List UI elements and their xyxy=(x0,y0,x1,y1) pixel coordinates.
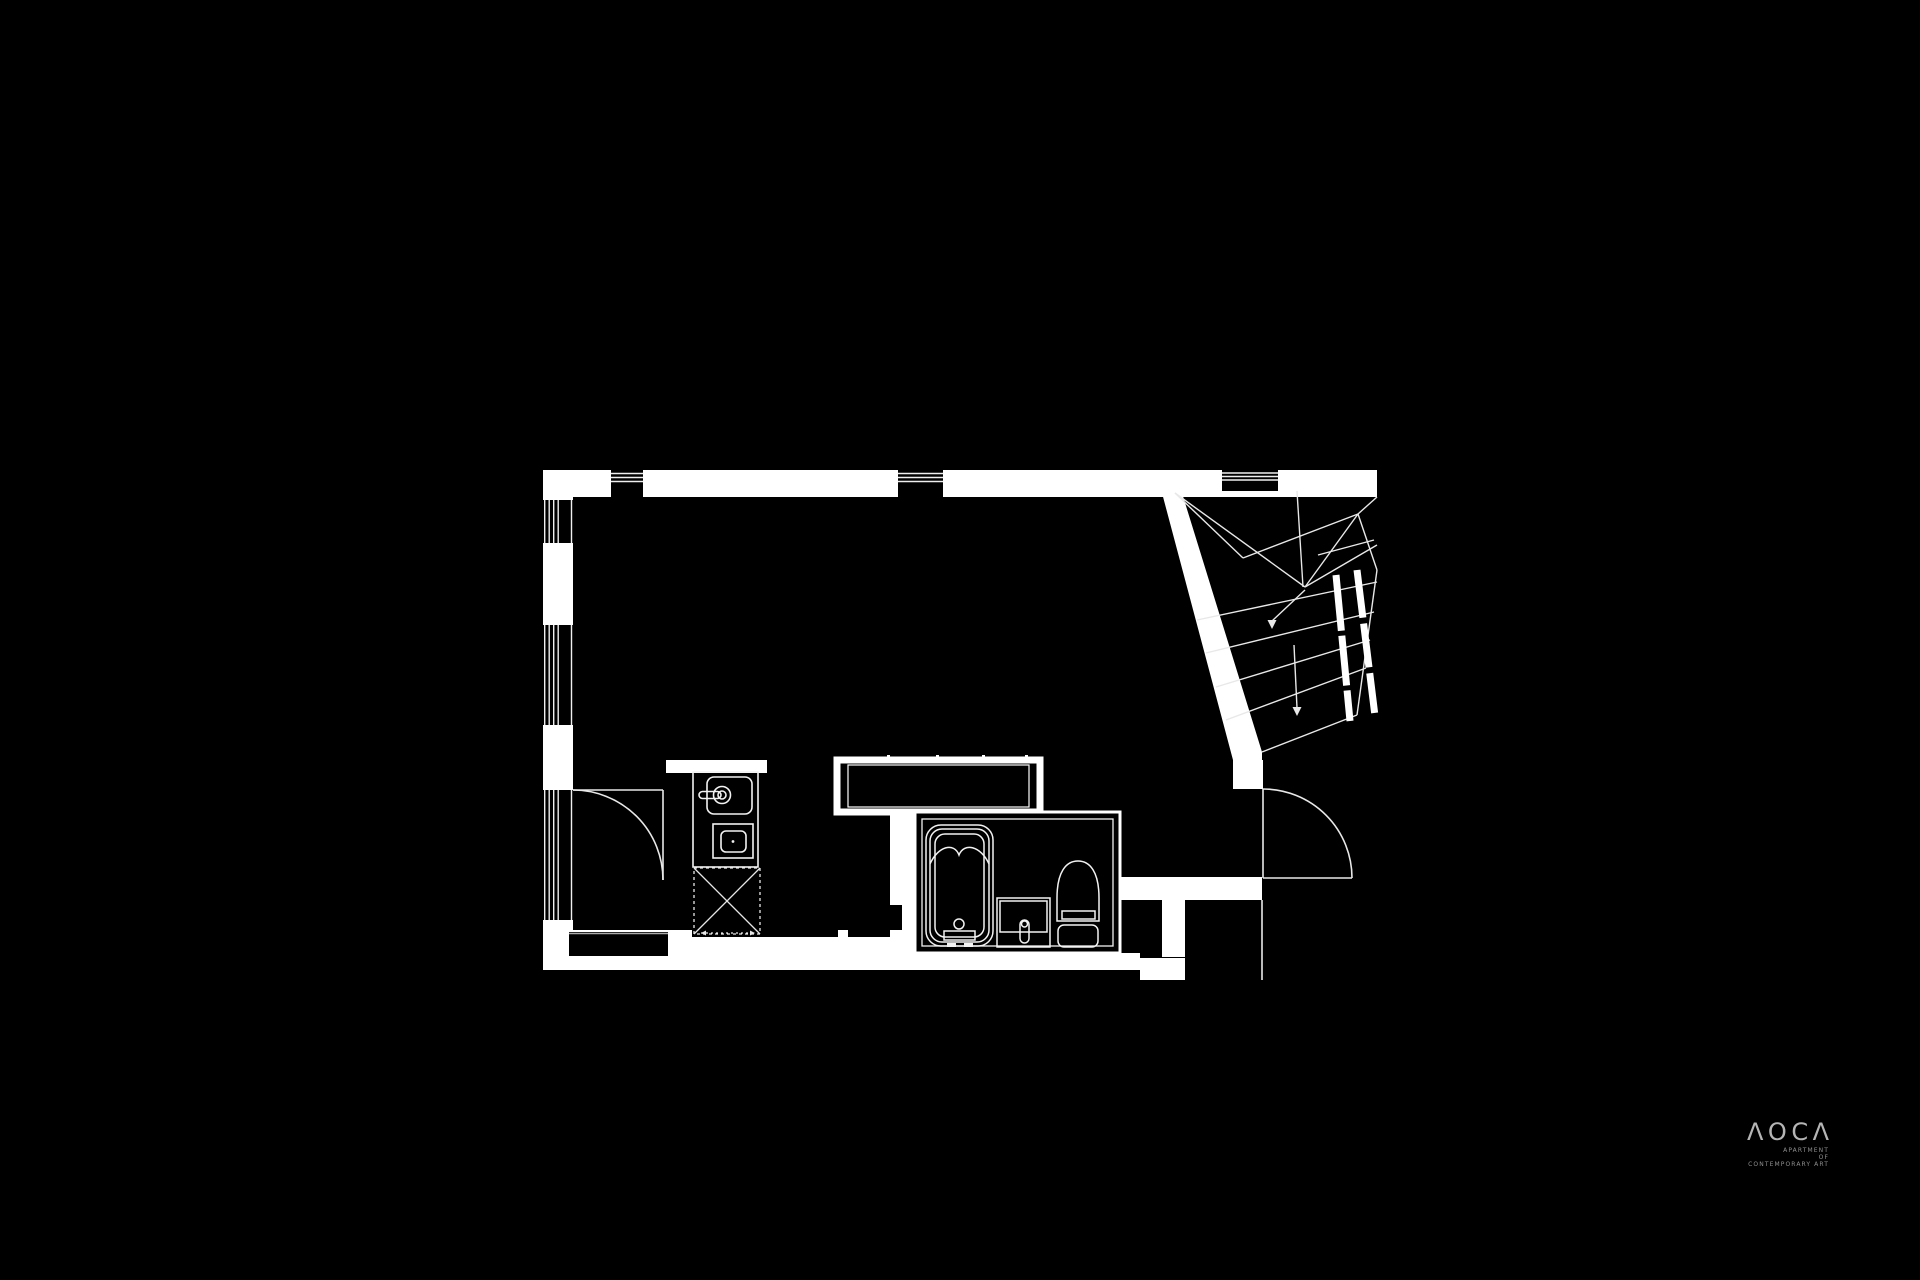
window-icon xyxy=(543,790,573,920)
kitchen-sink-icon xyxy=(699,777,752,814)
diagonal-wall xyxy=(1162,493,1262,789)
down-arrow-icon xyxy=(1268,590,1306,629)
interior-door-swing-icon xyxy=(573,790,663,880)
wall-column xyxy=(890,812,915,953)
brand-wordmark: ΛOCΛ xyxy=(1741,1120,1834,1144)
window-icon xyxy=(543,625,573,725)
floor-plan xyxy=(0,0,1920,1280)
closet-icon xyxy=(569,932,668,956)
brand-subline-2: OF xyxy=(1741,1154,1829,1161)
refrigerator-space-icon xyxy=(694,868,760,934)
brand-logo: ΛOCΛ APARTMENT OF CONTEMPORARY ART xyxy=(1741,1120,1829,1168)
window-icon xyxy=(611,470,643,497)
cooktop-icon xyxy=(713,824,753,858)
counter-island-icon xyxy=(837,755,1040,812)
faucet-icon xyxy=(699,787,731,804)
down-arrow-icon xyxy=(1293,645,1302,716)
window-icon xyxy=(1222,470,1278,491)
brand-subline-1: APARTMENT xyxy=(1741,1147,1829,1154)
hall-wall xyxy=(1120,760,1263,980)
floor-plan-canvas: ΛOCΛ APARTMENT OF CONTEMPORARY ART xyxy=(0,0,1920,1280)
brand-subline-3: CONTEMPORARY ART xyxy=(1741,1161,1829,1168)
entry-door-swing-icon xyxy=(1263,789,1352,878)
window-icon xyxy=(543,500,573,543)
window-icon xyxy=(898,470,943,497)
